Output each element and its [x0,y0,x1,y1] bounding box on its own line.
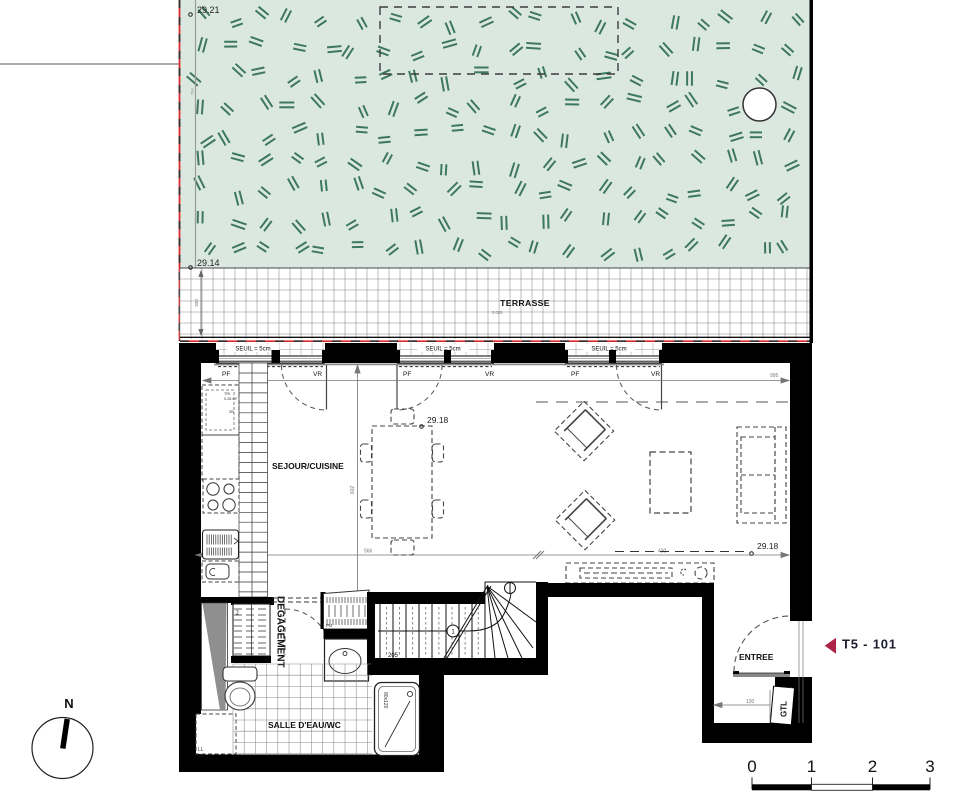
svg-text:1: 1 [807,757,816,776]
svg-text:PF: PF [571,371,579,378]
svg-text:PF: PF [403,371,411,378]
svg-text:TERRASSE: TERRASSE [500,298,550,308]
svg-text:29.14: 29.14 [197,258,220,268]
svg-text:29.21: 29.21 [197,5,220,15]
svg-text:2: 2 [868,757,877,776]
svg-text:566: 566 [364,549,373,555]
svg-text:PU: PU [326,623,332,628]
svg-text:TRI: TRI [224,392,230,396]
svg-text:602: 602 [350,486,356,495]
svg-text:320: 320 [194,299,199,307]
svg-text:205: 205 [388,653,399,659]
svg-text:T5 - 101: T5 - 101 [842,637,897,652]
svg-text:130: 130 [746,699,755,705]
svg-text:VR: VR [651,371,660,378]
svg-text:29.18: 29.18 [757,541,779,551]
svg-text:DEGAGEMENT: DEGAGEMENT [275,596,286,668]
svg-text:PF: PF [222,371,230,378]
svg-text:LL: LL [198,747,204,753]
svg-text:ENTREE: ENTREE [739,652,774,662]
svg-text:VR: VR [313,371,322,378]
svg-text:29.18: 29.18 [427,415,449,425]
svg-text:2B: 2B [229,409,234,414]
svg-text:N: N [64,696,73,711]
svg-text:0.28 m²: 0.28 m² [224,397,238,401]
svg-text:SEJOUR/CUISINE: SEJOUR/CUISINE [272,461,344,471]
svg-text:995: 995 [770,373,779,379]
svg-text:P4: P4 [235,610,240,616]
svg-text:0: 0 [747,757,756,776]
svg-text:3: 3 [925,757,934,776]
svg-text:SEUIL = 5cm: SEUIL = 5cm [425,347,460,353]
svg-text:790: 790 [190,88,195,95]
svg-text:SALLE D'EAU/WC: SALLE D'EAU/WC [268,720,341,730]
svg-text:SEUIL = 5cm: SEUIL = 5cm [235,347,270,353]
svg-text:3 025: 3 025 [492,310,503,315]
svg-text:GTL: GTL [780,701,789,717]
svg-text:80x120: 80x120 [382,692,388,709]
svg-text:VR: VR [485,371,494,378]
